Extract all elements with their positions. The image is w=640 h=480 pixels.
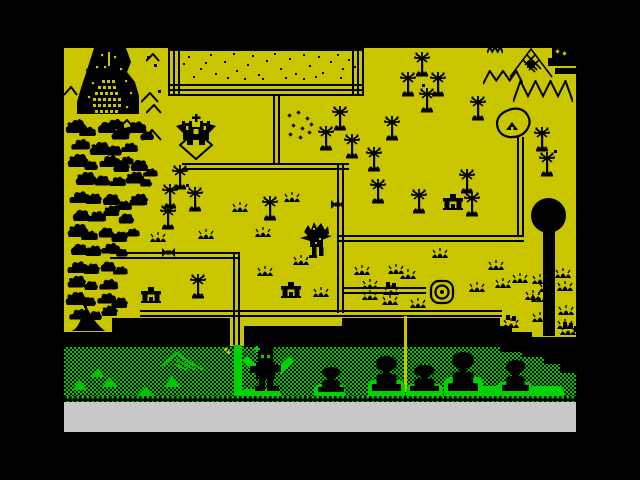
mountain-chevron-icon <box>117 119 137 131</box>
weed-icon <box>383 282 399 295</box>
dot-speck <box>154 64 157 67</box>
field-border <box>244 78 246 80</box>
mountain-chevron-icon <box>141 92 159 103</box>
field-border <box>354 66 356 68</box>
tree-icon <box>399 72 417 98</box>
weed-icon <box>503 315 519 328</box>
tree-icon <box>343 134 361 160</box>
field-border <box>227 77 229 79</box>
grass-tuft-icon <box>255 227 271 237</box>
tree-icon <box>469 96 487 122</box>
bush-icon <box>100 304 119 317</box>
dot-speck <box>186 184 189 187</box>
grass-tuft-icon <box>382 295 398 305</box>
field-border <box>236 70 238 72</box>
bush-icon <box>116 210 138 224</box>
field-border <box>205 62 207 64</box>
map-ground-patch <box>238 318 342 326</box>
field-border <box>168 48 364 51</box>
green-hill-icon <box>72 380 87 390</box>
field-border <box>252 55 254 57</box>
path-segment <box>517 137 524 237</box>
mountain-chevron-icon <box>86 64 98 72</box>
round-tree-trunk <box>543 230 555 336</box>
tree-icon <box>186 187 204 213</box>
tree-icon <box>189 274 207 300</box>
grass-tuft-icon <box>400 269 416 279</box>
path-segment <box>110 252 240 259</box>
bush-icon <box>118 154 135 165</box>
field-border <box>348 59 350 61</box>
grass-tuft-icon <box>257 266 273 276</box>
grass-tuft-icon <box>150 232 166 242</box>
hatched-mountain-icon <box>509 48 553 78</box>
field-border <box>200 68 202 70</box>
grass-tuft-icon <box>512 273 528 283</box>
field-border <box>303 54 305 56</box>
grass-tuft-icon <box>469 282 485 292</box>
hut-icon <box>502 360 529 391</box>
green-ridge-icon <box>162 352 206 372</box>
grass-tuft-icon <box>232 202 248 212</box>
bush-icon <box>128 192 150 206</box>
hut-icon <box>372 356 401 391</box>
green-hill-icon <box>102 377 118 387</box>
tree-icon <box>317 126 335 152</box>
dot-speck <box>554 150 557 153</box>
corner-rocks <box>548 46 576 76</box>
green-hill-icon <box>91 368 105 377</box>
path-segment <box>233 252 240 345</box>
tree-icon <box>383 116 401 142</box>
field-border <box>274 53 276 55</box>
mountain-chevron-icon <box>64 86 78 96</box>
tree-icon <box>410 189 428 215</box>
weed-icon <box>560 322 576 335</box>
field-border <box>285 77 287 79</box>
field-border <box>233 53 235 55</box>
field-border <box>168 84 364 86</box>
hut-icon <box>318 367 344 392</box>
tree-icon <box>533 127 551 153</box>
grass-tuft-icon <box>362 290 378 300</box>
round-tree-icon <box>531 198 566 233</box>
field-border <box>342 68 344 70</box>
hut-icon <box>448 352 478 391</box>
dot-speck <box>147 56 150 59</box>
dot-field <box>168 48 364 96</box>
field-border <box>215 73 217 75</box>
gate-icon <box>162 246 175 259</box>
grass-tuft-icon <box>495 278 511 288</box>
house-icon <box>141 287 161 303</box>
bush-icon <box>98 276 120 290</box>
grass-tuft-icon <box>488 260 504 270</box>
field-border <box>224 61 226 63</box>
grass-tuft-icon <box>557 281 573 291</box>
game-screen[interactable] <box>0 0 640 480</box>
band-shadow <box>560 364 576 373</box>
tree-icon <box>463 192 481 218</box>
field-border <box>337 54 339 56</box>
well-icon <box>429 279 455 305</box>
field-border <box>183 63 185 65</box>
tree-icon <box>418 88 436 114</box>
mountain-range-icon <box>487 46 503 54</box>
field-border <box>295 73 297 75</box>
grass-tuft-icon <box>432 248 448 258</box>
green-hill-icon <box>164 375 180 387</box>
grass-tuft-icon <box>354 265 370 275</box>
player-character <box>241 344 295 394</box>
bush-icon <box>138 176 155 187</box>
grass-tuft-icon <box>558 305 574 315</box>
grass-tuft-icon <box>362 279 378 289</box>
field-border <box>168 94 364 96</box>
field-border <box>330 61 332 63</box>
castle-icon <box>68 42 146 120</box>
tree-icon <box>369 179 387 205</box>
bush-icon <box>124 226 141 237</box>
band-shadow <box>544 357 576 364</box>
grass-tuft-icon <box>313 287 329 297</box>
house-icon <box>281 282 301 298</box>
hut-icon <box>410 365 439 391</box>
gnarly-tree-icon <box>300 222 332 258</box>
field-border <box>258 74 260 76</box>
tree-icon <box>159 205 177 231</box>
dot-speck <box>158 90 161 93</box>
field-border <box>193 76 195 78</box>
field-border <box>247 64 249 66</box>
house-icon <box>443 194 463 210</box>
tree-icon <box>365 147 383 173</box>
path-segment <box>182 163 349 170</box>
grass-tuft-icon <box>555 268 571 278</box>
field-border <box>262 78 264 80</box>
field-border <box>188 56 190 58</box>
field-border <box>315 76 317 78</box>
field-border <box>309 65 311 67</box>
field-border <box>303 78 305 80</box>
grass-tuft-icon <box>410 298 426 308</box>
dot-speck <box>422 84 425 87</box>
path-segment <box>273 95 280 165</box>
path-line-vertical <box>404 316 407 392</box>
field-border <box>289 58 291 60</box>
gate-icon <box>331 198 344 211</box>
church-icon <box>176 114 216 162</box>
path-segment <box>140 310 502 317</box>
field-border <box>318 56 320 58</box>
field-border <box>340 77 342 79</box>
tree-icon <box>261 196 279 222</box>
field-border <box>266 60 268 62</box>
mountain-range-icon <box>513 80 573 103</box>
field-border <box>168 89 364 91</box>
bush-icon <box>120 140 139 153</box>
tree-icon <box>538 152 556 178</box>
status-bar <box>64 402 576 432</box>
grass-tuft-icon <box>198 229 214 239</box>
mountain-chevron-icon <box>142 129 162 141</box>
cave-icon <box>495 107 533 141</box>
path-segment <box>337 235 524 242</box>
field-border <box>280 68 282 70</box>
bush-icon <box>112 264 129 275</box>
field-border <box>210 54 212 56</box>
grass-tuft-icon <box>284 192 300 202</box>
field-border <box>322 72 324 74</box>
mountain-chevron-icon <box>146 104 162 114</box>
mountain-chevron-icon <box>71 119 88 130</box>
